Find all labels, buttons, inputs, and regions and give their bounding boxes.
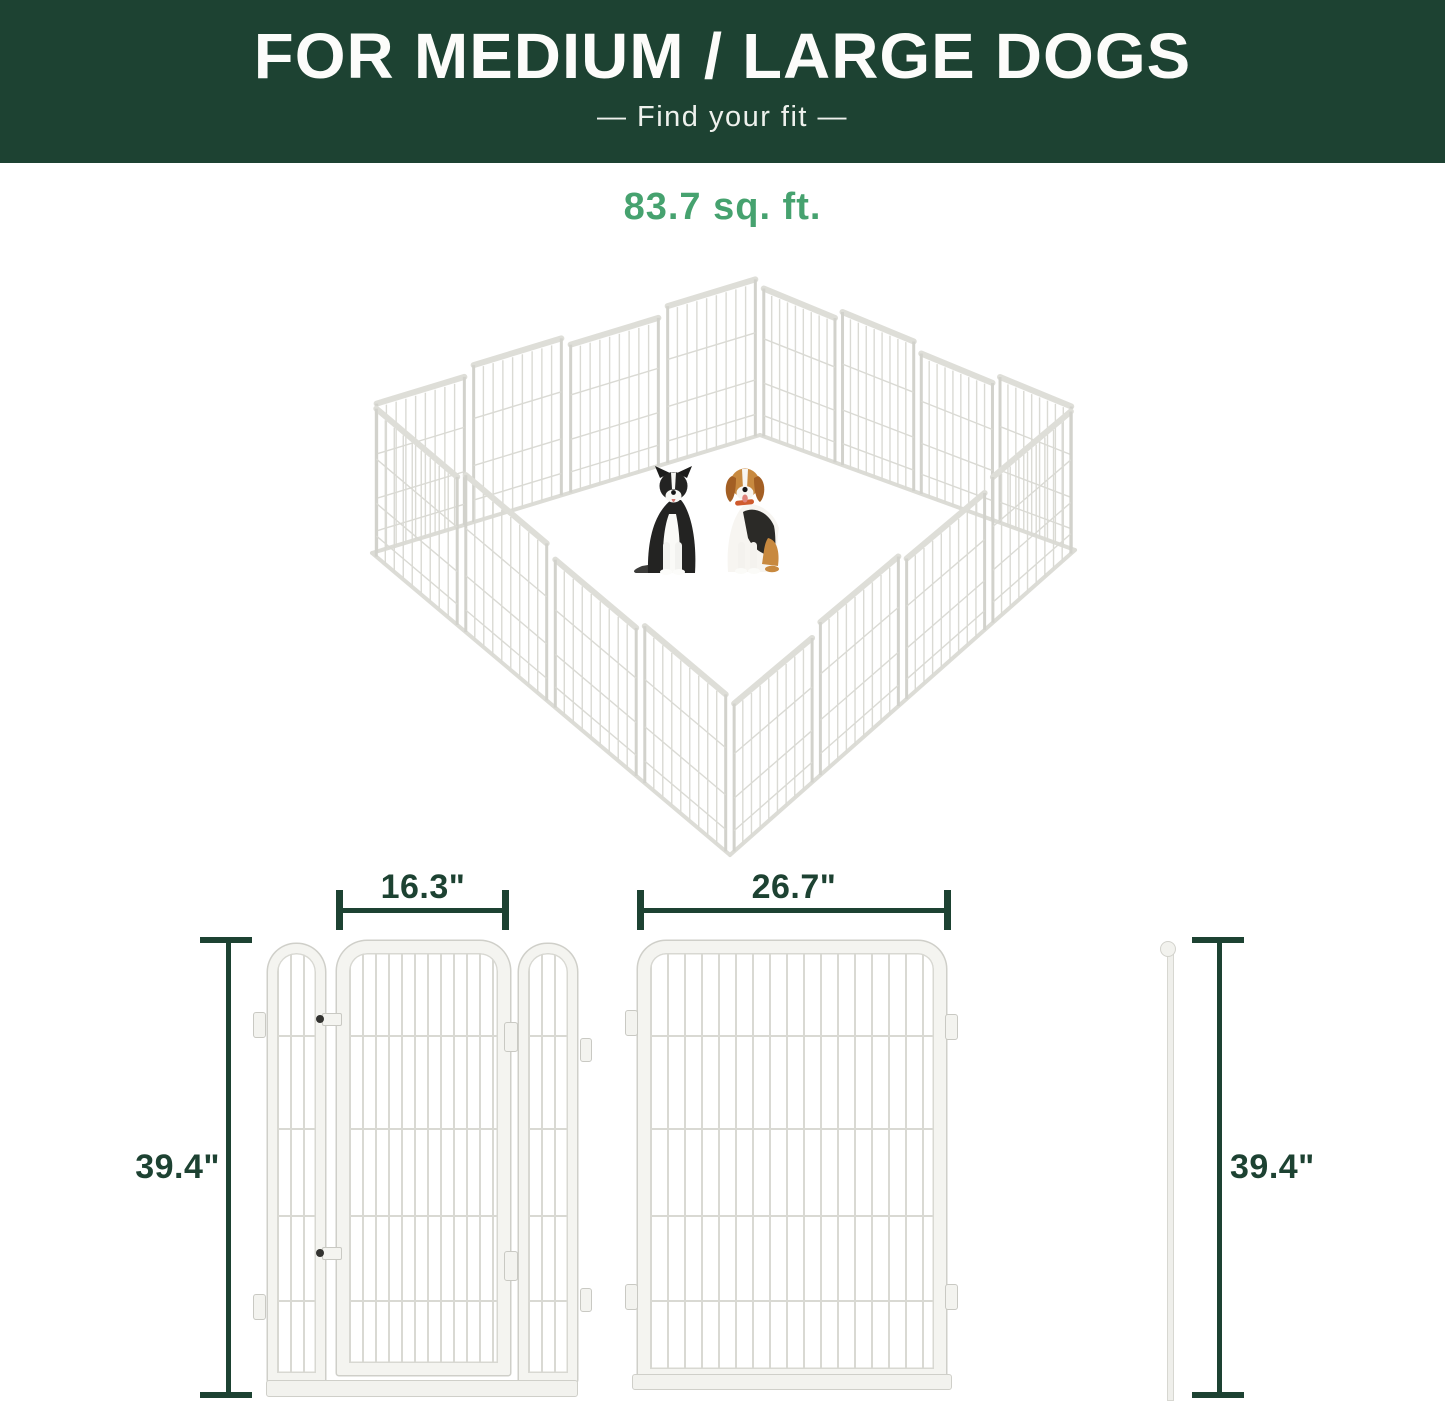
ground-stake-cap	[1160, 941, 1176, 957]
wire-row	[650, 1215, 934, 1217]
panel-base-rail	[632, 1374, 952, 1390]
wire-row	[650, 1128, 934, 1130]
regular-panel-diagram: 26.7" 39.4"	[0, 0, 1445, 1403]
panel-width-line	[641, 908, 947, 913]
ground-stake	[1168, 952, 1173, 1400]
wire-row	[650, 1035, 934, 1037]
panel-height-line	[1217, 941, 1222, 1394]
connector-tab	[625, 1284, 638, 1310]
panel-height-label: 39.4"	[1230, 1148, 1360, 1187]
connector-tab	[945, 1284, 958, 1310]
connector-tab	[625, 1010, 638, 1036]
connector-tab	[945, 1014, 958, 1040]
regular-panel	[638, 941, 946, 1381]
wire-row	[650, 1300, 934, 1302]
panel-width-label: 26.7"	[640, 868, 948, 907]
product-image: FOR MEDIUM / LARGE DOGS — Find your fit …	[0, 0, 1445, 1403]
